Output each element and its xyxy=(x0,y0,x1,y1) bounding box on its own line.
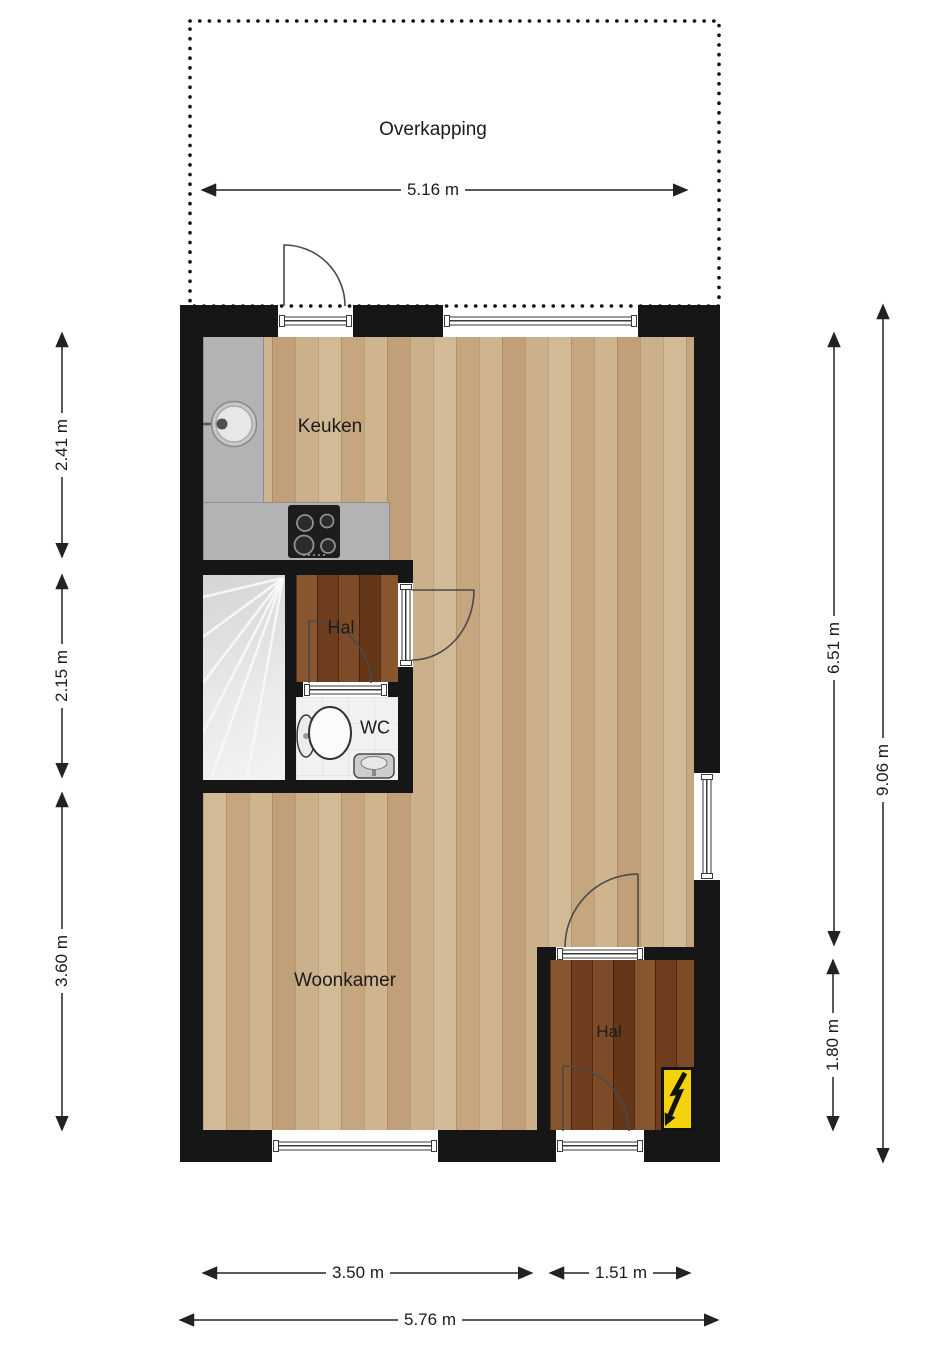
door-opening-woonkamer-hal xyxy=(556,947,644,960)
lightning-bolt-icon xyxy=(664,1070,691,1128)
wall-wc-bottom xyxy=(180,780,413,793)
window-top xyxy=(443,305,638,337)
overkapping-dotted-outline xyxy=(190,21,719,306)
wall-hal-lower-left xyxy=(537,947,550,1130)
floor-wc xyxy=(296,697,398,780)
stove xyxy=(288,505,340,558)
room-label-keuken: Keuken xyxy=(298,416,362,438)
dim-label-exterior-width: 5.76 m xyxy=(398,1309,462,1331)
window-bottom xyxy=(272,1130,438,1162)
stove-burners-icon xyxy=(288,505,340,558)
dim-label-interior-height: 6.51 m xyxy=(823,616,845,680)
electrical-panel xyxy=(661,1067,694,1131)
entry-door-opening xyxy=(556,1130,644,1162)
wall-right xyxy=(694,305,720,1162)
stairs-treads-icon xyxy=(203,575,285,780)
dim-label-exterior-height: 9.06 m xyxy=(872,738,894,802)
dim-label-woonkamer-depth: 3.60 m xyxy=(51,929,73,993)
dim-label-keuken-depth: 2.41 m xyxy=(51,413,73,477)
dim-label-hal-depth: 1.80 m xyxy=(822,1013,844,1077)
kitchen-sink-icon xyxy=(196,397,262,451)
floor-plan: Overkapping Keuken Hal WC Woonkamer Hal … xyxy=(0,0,936,1354)
door-opening-hal-wc xyxy=(303,682,388,697)
dim-label-stairs-depth: 2.15 m xyxy=(51,644,73,708)
wc-fixtures xyxy=(296,697,398,780)
wall-keuken-divider xyxy=(180,560,413,575)
room-label-overkapping: Overkapping xyxy=(379,119,487,141)
room-label-woonkamer: Woonkamer xyxy=(294,970,396,992)
door-opening-keuken-overkapping xyxy=(278,305,353,337)
stairs xyxy=(203,575,285,780)
door-opening-hal-woonkamer xyxy=(398,583,413,667)
room-label-hal-lower: Hal xyxy=(596,1022,622,1042)
wall-wc-right xyxy=(398,682,413,793)
dim-label-overkapping-width: 5.16 m xyxy=(401,179,465,201)
wall-left xyxy=(180,305,203,1162)
room-label-hal-upper: Hal xyxy=(327,618,354,639)
window-right xyxy=(694,773,720,880)
dim-label-woonkamer-width: 3.50 m xyxy=(326,1262,390,1284)
dim-label-hal-width: 1.51 m xyxy=(589,1262,653,1284)
door-swing-keuken xyxy=(284,245,345,306)
wall-stairs-hal xyxy=(285,573,296,783)
room-label-wc: WC xyxy=(360,718,390,739)
toilet-bowl-icon xyxy=(309,707,351,759)
